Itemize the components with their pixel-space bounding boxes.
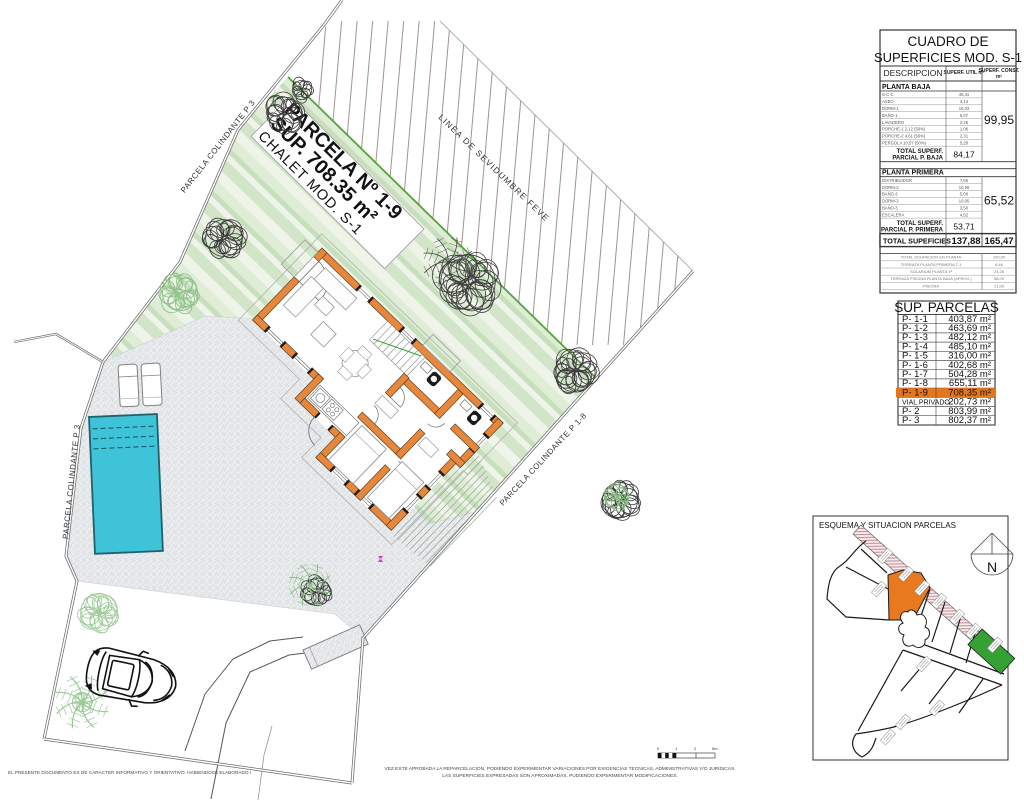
svg-text:P- 1-9: P- 1-9: [902, 387, 928, 398]
svg-text:TERRAZA PLANTA PRIMERA T-1: TERRAZA PLANTA PRIMERA T-1: [901, 262, 962, 267]
svg-text:46,41: 46,41: [959, 92, 970, 97]
svg-text:ESQUEMA Y SITUACION PARCELAS: ESQUEMA Y SITUACION PARCELAS: [819, 521, 956, 530]
svg-text:PORCHE-2 4,61 (50%): PORCHE-2 4,61 (50%): [882, 134, 926, 139]
svg-text:EL PRESENTE DOCUMENTO ES DE CA: EL PRESENTE DOCUMENTO ES DE CARACTER INF…: [8, 770, 251, 775]
svg-text:DISTRIBUIDOR: DISTRIBUIDOR: [882, 178, 912, 183]
svg-text:CUADRO DE: CUADRO DE: [907, 34, 988, 49]
svg-text:3,14: 3,14: [960, 99, 969, 104]
svg-text:4,52: 4,52: [960, 212, 969, 217]
svg-text:137,88: 137,88: [951, 236, 980, 247]
svg-text:PARCIAL P. PRIMERA: PARCIAL P. PRIMERA: [881, 228, 944, 234]
svg-text:LAS SUPERFICIES EXPRESADAS SON: LAS SUPERFICIES EXPRESADAS SON APROXIMAD…: [442, 773, 678, 779]
svg-text:53,71: 53,71: [953, 222, 975, 232]
svg-text:84,17: 84,17: [953, 150, 975, 160]
svg-text:5,07: 5,07: [960, 113, 969, 118]
svg-text:21,00: 21,00: [994, 283, 1005, 288]
svg-text:ASEO: ASEO: [882, 99, 894, 104]
svg-text:5,28: 5,28: [960, 141, 969, 146]
svg-text:DESCRIPCION: DESCRIPCION: [883, 68, 942, 78]
svg-text:PLANTA BAJA: PLANTA BAJA: [882, 84, 931, 91]
svg-text:ESCALERA: ESCALERA: [882, 212, 905, 217]
svg-text:SOLARIUM PLANTA 1ª: SOLARIUM PLANTA 1ª: [910, 269, 952, 274]
svg-text:5,06: 5,06: [960, 192, 969, 197]
svg-text:7,05: 7,05: [960, 178, 969, 183]
svg-text:100,00: 100,00: [993, 255, 1006, 260]
svg-text:BAÑO-1: BAÑO-1: [882, 113, 898, 118]
svg-text:LAVADERO: LAVADERO: [882, 120, 905, 125]
svg-text:VEZ ESTE APROBADA LA REPARCELA: VEZ ESTE APROBADA LA REPARCELACION. PODI…: [385, 766, 736, 772]
svg-text:DORM-3: DORM-3: [882, 199, 899, 204]
svg-text:TERRAZA PISCINA PLANTA BAJA (A: TERRAZA PISCINA PLANTA BAJA (APROX.): [890, 276, 972, 281]
svg-text:24,26: 24,26: [994, 269, 1005, 274]
svg-text:PARCIAL P. BAJA: PARCIAL P. BAJA: [892, 156, 943, 162]
svg-text:DORM-1: DORM-1: [882, 106, 899, 111]
svg-text:6,46: 6,46: [995, 262, 1004, 267]
svg-text:PERGOLA 10,57 (50%): PERGOLA 10,57 (50%): [882, 141, 927, 146]
svg-text:TOTAL SUPERF.: TOTAL SUPERF.: [897, 221, 944, 227]
svg-text:65,52: 65,52: [984, 193, 1014, 207]
svg-text:165,47: 165,47: [984, 236, 1013, 247]
svg-text:SUP. PARCELAS: SUP. PARCELAS: [894, 300, 999, 315]
svg-text:5m: 5m: [712, 746, 718, 751]
svg-text:2,31: 2,31: [960, 134, 969, 139]
svg-text:PISCINA: PISCINA: [923, 283, 939, 288]
svg-text:TOTAL SUPEFICIES: TOTAL SUPEFICIES: [883, 237, 951, 246]
svg-text:BAÑO-3: BAÑO-3: [882, 206, 898, 211]
svg-text:N: N: [987, 559, 997, 575]
svg-text:P- 3: P- 3: [902, 415, 919, 426]
svg-text:1,06: 1,06: [960, 127, 969, 132]
svg-text:PORCHE-1 2,12 (50%): PORCHE-1 2,12 (50%): [882, 127, 926, 132]
svg-text:2,26: 2,26: [960, 120, 969, 125]
svg-text:10,59: 10,59: [959, 185, 970, 190]
svg-text:16,03: 16,03: [959, 106, 970, 111]
svg-text:99,95: 99,95: [984, 113, 1014, 127]
svg-text:3,50: 3,50: [960, 206, 969, 211]
svg-text:TOTAL OCUPACION EN PLANTA: TOTAL OCUPACION EN PLANTA: [901, 255, 962, 260]
svg-text:BAÑO-2: BAÑO-2: [882, 192, 898, 197]
svg-text:58,09: 58,09: [994, 276, 1005, 281]
svg-text:802,37 m²: 802,37 m²: [948, 415, 991, 426]
svg-text:PLANTA PRIMERA: PLANTA PRIMERA: [882, 170, 944, 177]
svg-text:10,05: 10,05: [959, 199, 970, 204]
svg-text:TOTAL SUPERF.: TOTAL SUPERF.: [897, 149, 944, 155]
svg-text:S-C-C: S-C-C: [882, 92, 894, 97]
svg-text:DORM-2: DORM-2: [882, 185, 899, 190]
svg-text:SUPERFICIES MOD. S-1: SUPERFICIES MOD. S-1: [874, 50, 1022, 65]
svg-text:m²: m²: [996, 74, 1002, 80]
